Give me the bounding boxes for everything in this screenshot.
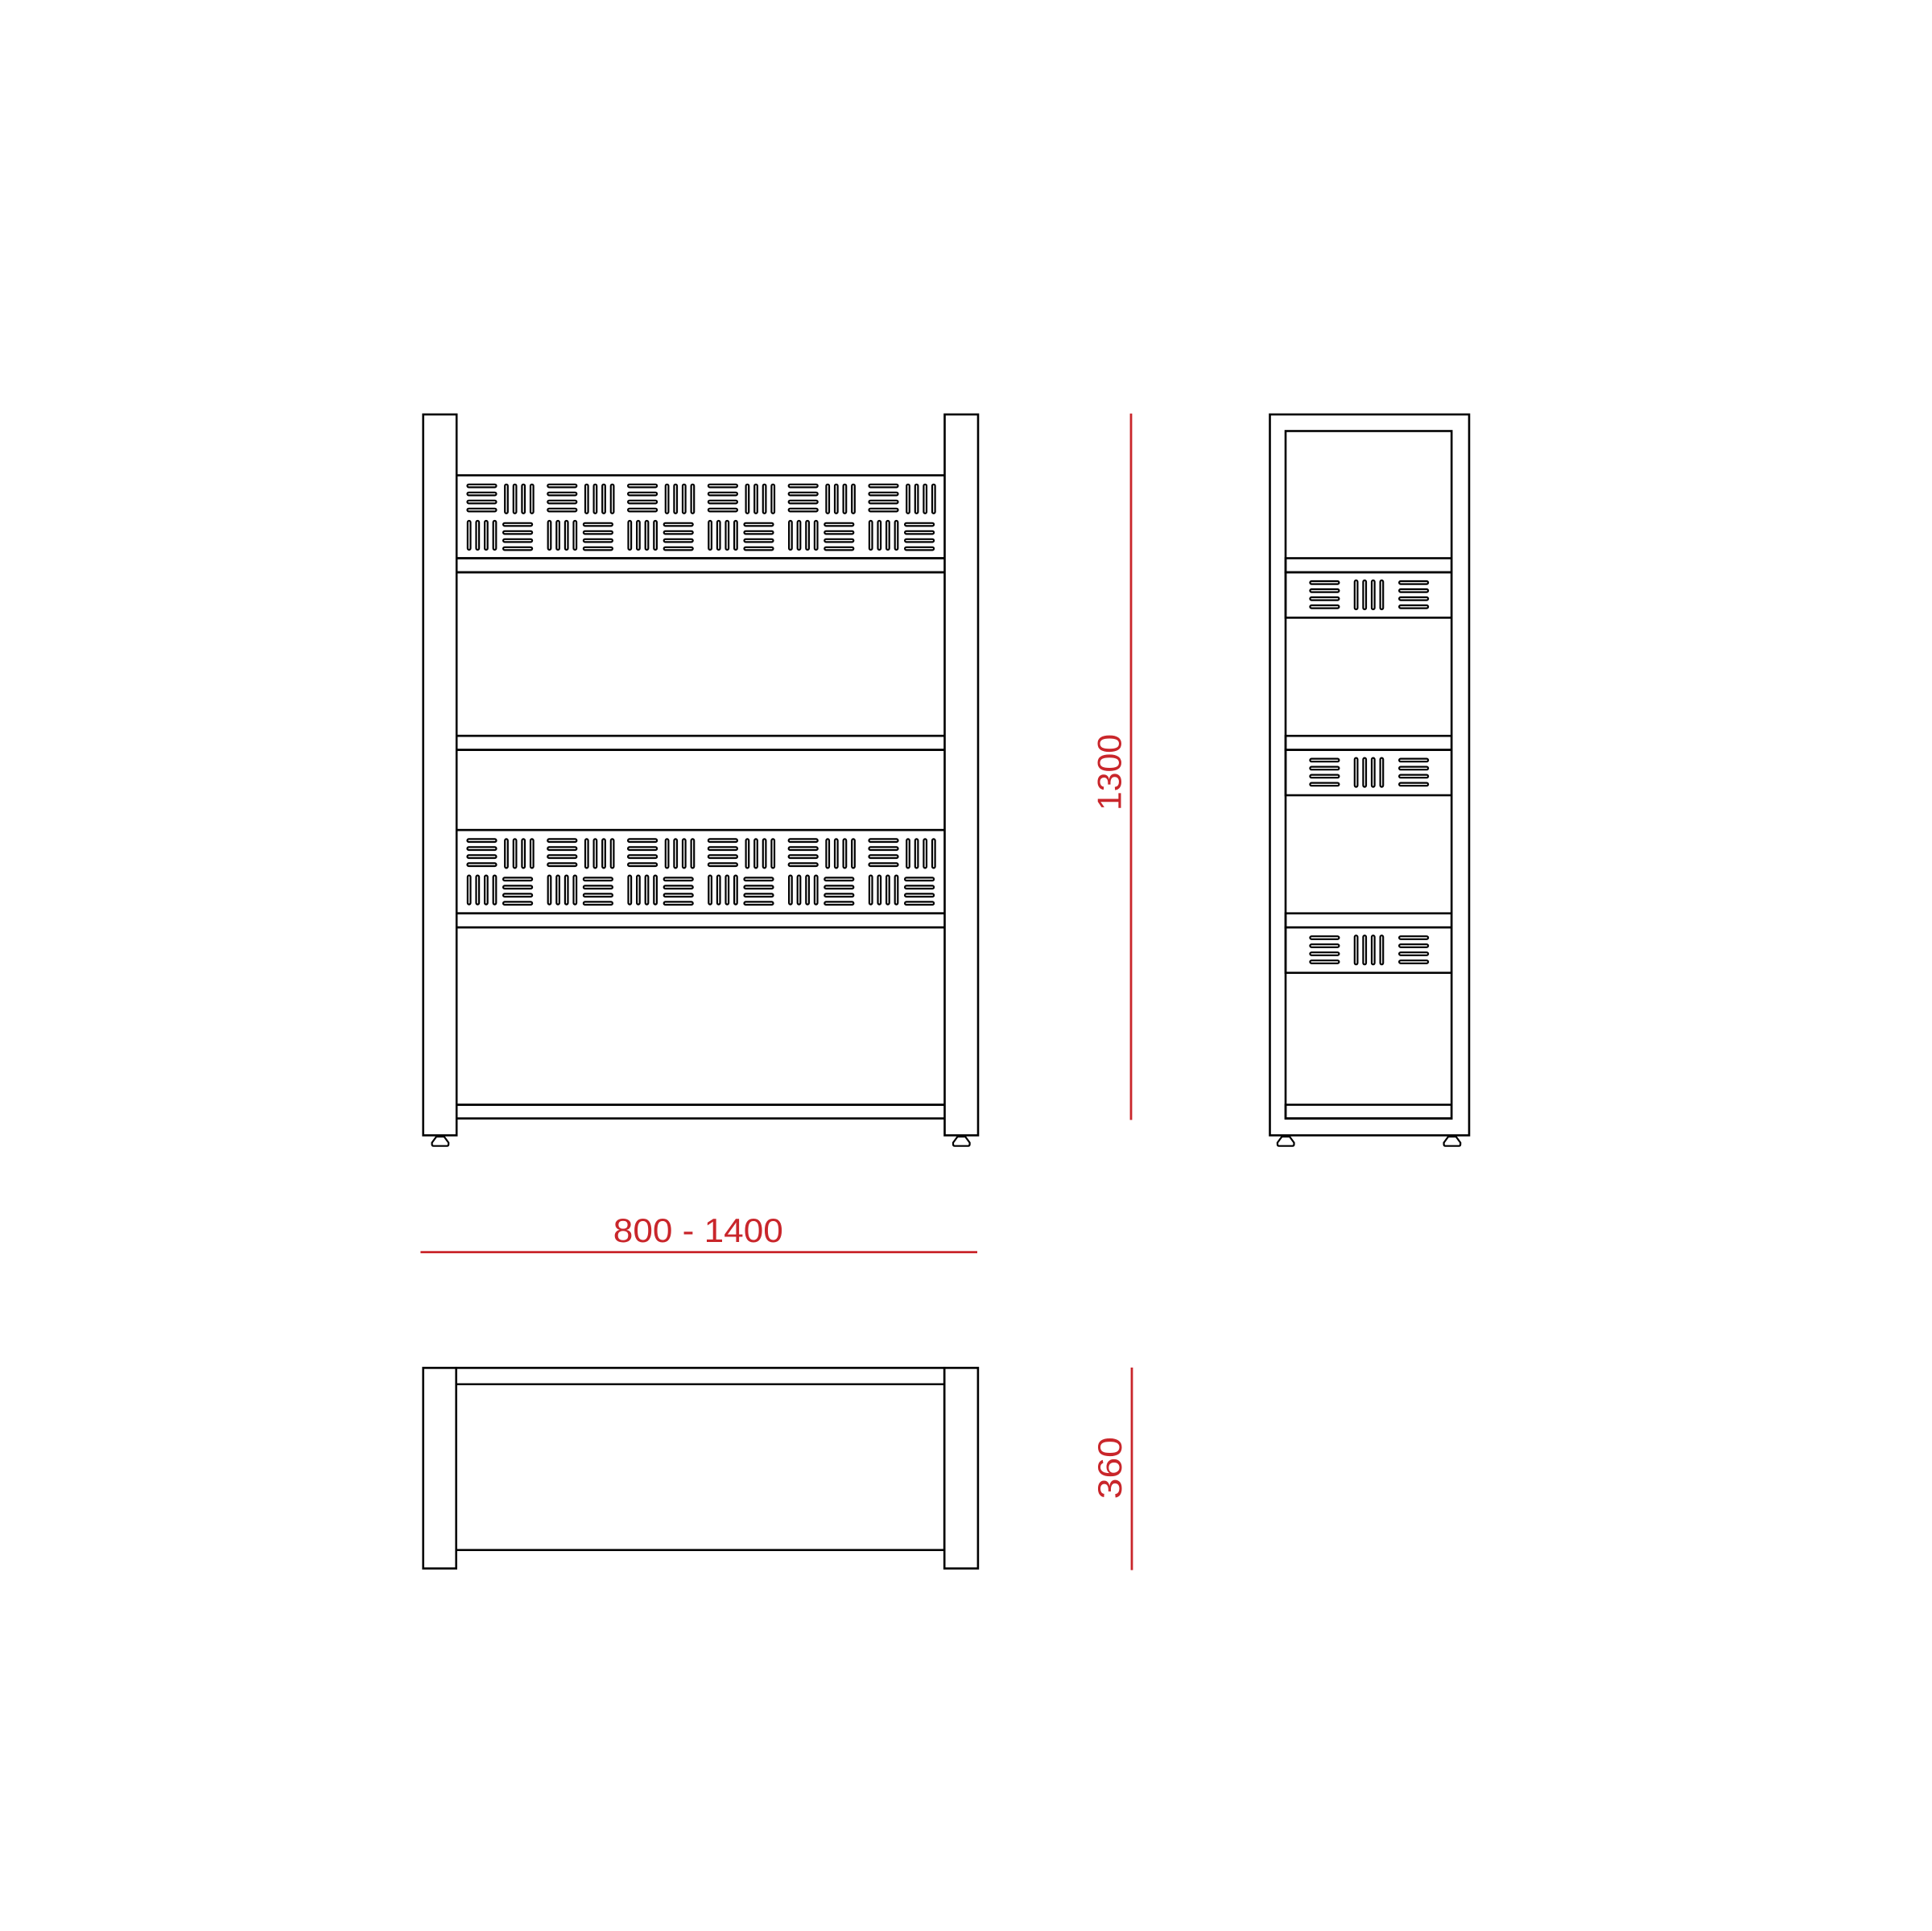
svg-text:800 - 1400: 800 - 1400 — [613, 1211, 783, 1249]
svg-text:360: 360 — [1091, 1437, 1129, 1499]
svg-text:1300: 1300 — [1091, 734, 1129, 811]
